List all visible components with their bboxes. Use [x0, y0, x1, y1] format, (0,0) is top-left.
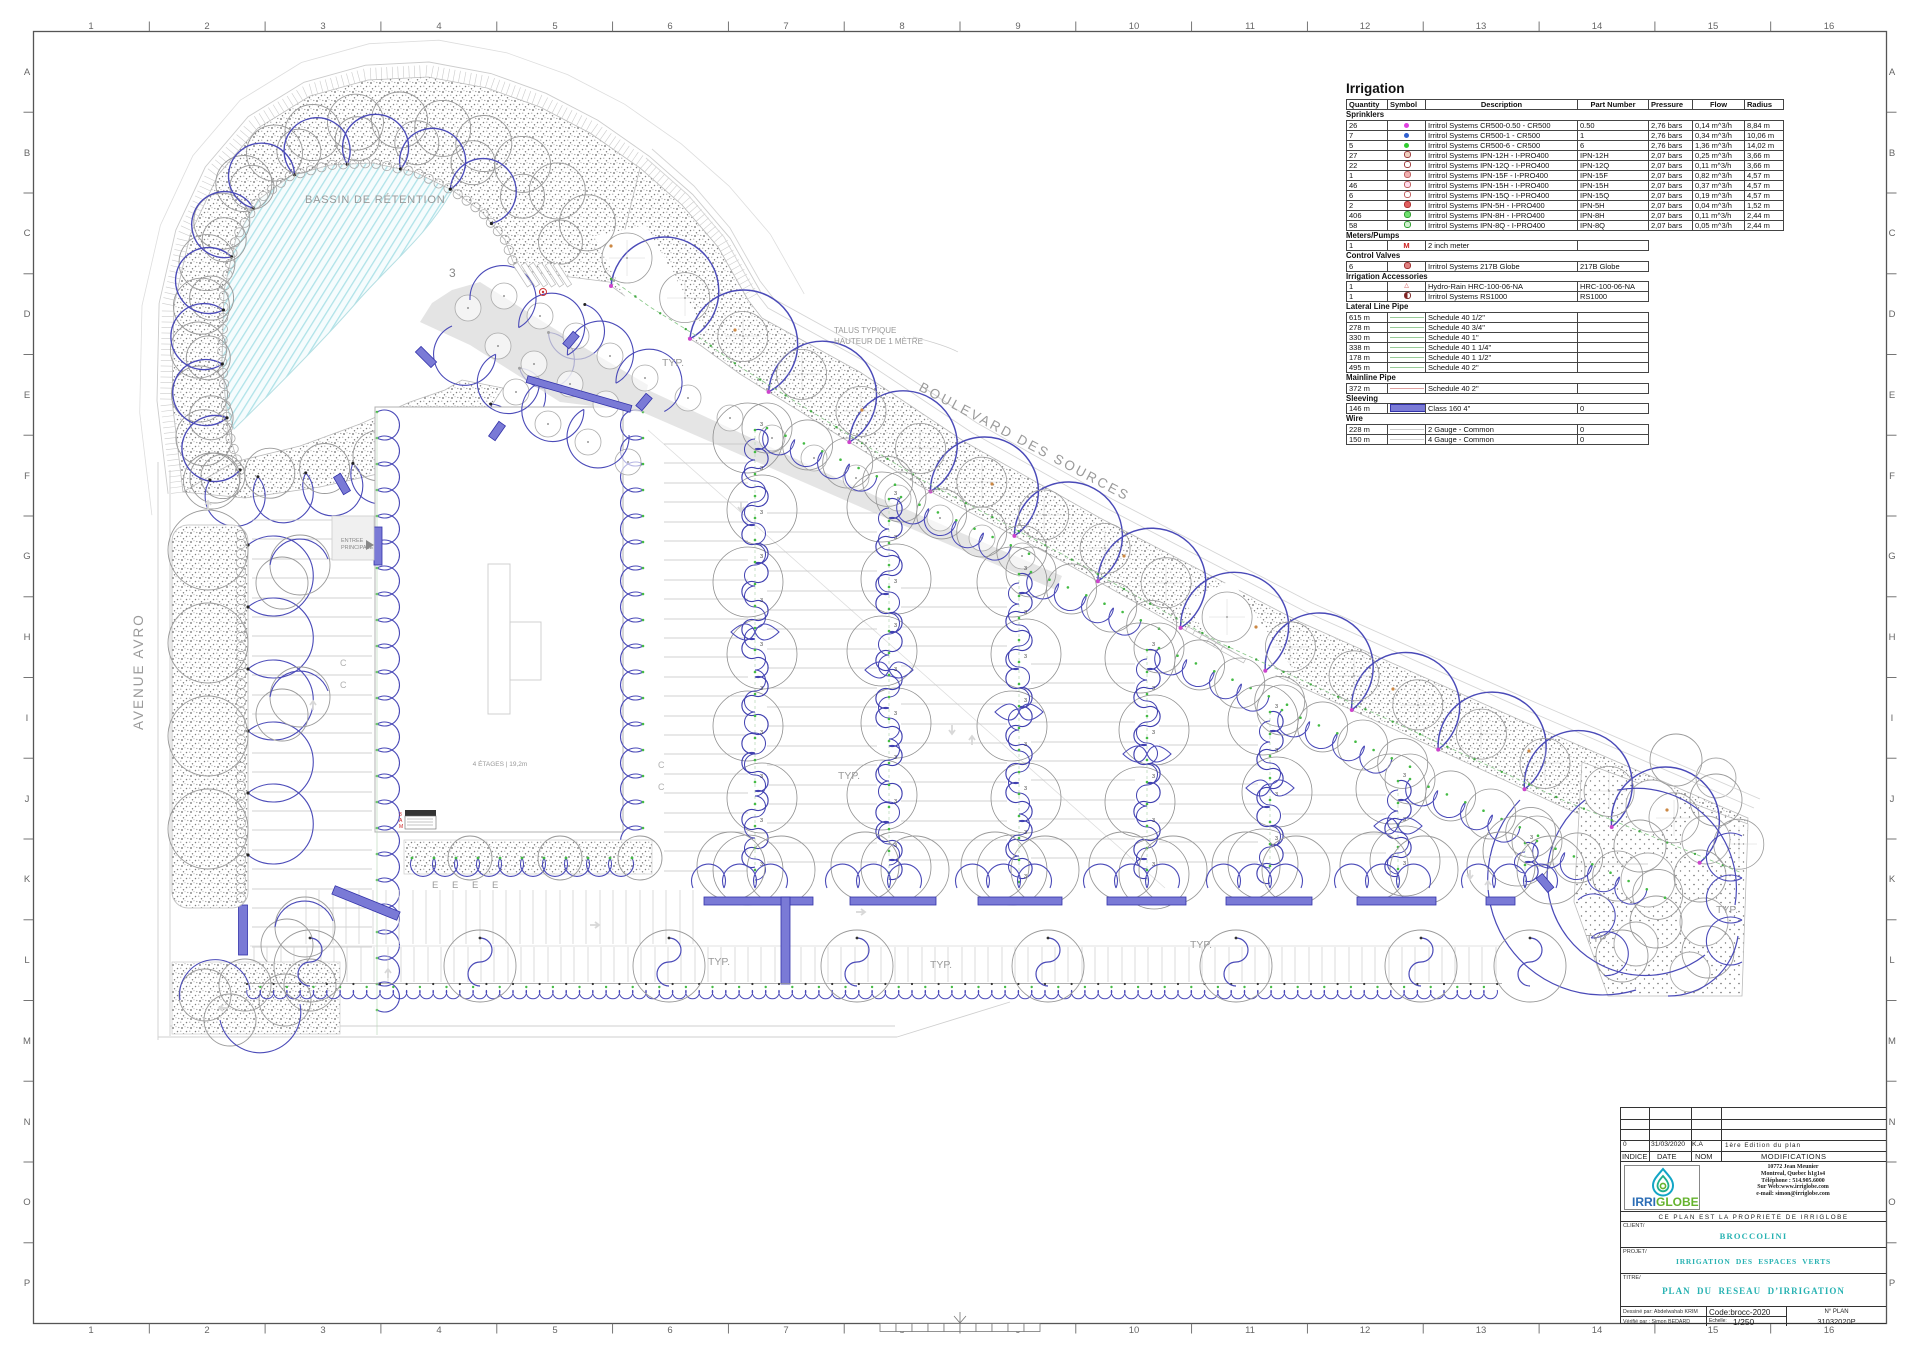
svg-text:8: 8 [899, 21, 904, 32]
svg-text:D: D [24, 309, 31, 320]
svg-text:5: 5 [552, 21, 557, 32]
svg-text:3: 3 [1024, 786, 1027, 792]
svg-text:C: C [1889, 228, 1896, 239]
svg-text:2: 2 [204, 21, 209, 32]
svg-text:2: 2 [204, 1325, 209, 1336]
svg-text:5: 5 [552, 1325, 557, 1336]
svg-text:3: 3 [1152, 642, 1155, 648]
svg-text:7: 7 [783, 21, 788, 32]
svg-text:15: 15 [1708, 21, 1719, 32]
svg-text:TYP.: TYP. [1190, 939, 1212, 951]
svg-text:3: 3 [894, 711, 897, 717]
svg-text:TALUS TYPIQUE: TALUS TYPIQUE [834, 326, 896, 335]
svg-text:IRRIGLOBE: IRRIGLOBE [1632, 1195, 1699, 1209]
svg-text:3: 3 [1530, 835, 1533, 841]
svg-text:BASSIN DE RÉTENTION: BASSIN DE RÉTENTION [305, 193, 446, 206]
svg-text:H: H [1889, 632, 1896, 643]
svg-text:3: 3 [760, 686, 763, 692]
svg-text:3: 3 [894, 623, 897, 629]
svg-text:I: I [1891, 713, 1894, 724]
svg-text:13: 13 [1476, 21, 1487, 32]
svg-text:16: 16 [1824, 21, 1835, 32]
svg-text:3: 3 [1275, 704, 1278, 710]
svg-text:M: M [23, 1036, 31, 1047]
svg-text:F: F [1889, 471, 1895, 482]
svg-text:3: 3 [760, 774, 763, 780]
svg-text:C: C [658, 760, 665, 770]
svg-text:E: E [1889, 390, 1895, 401]
svg-text:A: A [1889, 67, 1896, 78]
svg-text:3: 3 [760, 598, 763, 604]
svg-text:3: 3 [1024, 742, 1027, 748]
svg-text:TYP.: TYP. [930, 959, 952, 971]
svg-text:TYP.: TYP. [662, 357, 684, 369]
svg-text:D: D [1889, 309, 1896, 320]
svg-text:K: K [24, 874, 31, 885]
svg-text:ENTREE: ENTREE [341, 538, 364, 544]
svg-text:3: 3 [894, 491, 897, 497]
svg-text:P: P [24, 1278, 30, 1289]
svg-text:N: N [24, 1117, 31, 1128]
svg-text:1: 1 [88, 21, 93, 32]
svg-text:3: 3 [1152, 774, 1155, 780]
svg-text:TYP.: TYP. [1586, 933, 1608, 945]
svg-text:E: E [24, 390, 30, 401]
svg-text:3: 3 [760, 466, 763, 472]
svg-text:3: 3 [760, 730, 763, 736]
svg-text:3: 3 [1024, 698, 1027, 704]
svg-text:TYP.: TYP. [1716, 904, 1738, 916]
svg-text:3: 3 [894, 579, 897, 585]
svg-text:O: O [1888, 1197, 1895, 1208]
svg-text:12: 12 [1360, 1325, 1371, 1336]
svg-text:3: 3 [1403, 773, 1406, 779]
svg-text:K: K [1889, 874, 1896, 885]
svg-text:H: H [24, 632, 31, 643]
svg-text:15: 15 [1708, 1325, 1719, 1336]
svg-text:10: 10 [1129, 21, 1140, 32]
svg-text:A: A [24, 67, 31, 78]
svg-text:3: 3 [894, 755, 897, 761]
svg-text:14: 14 [1592, 21, 1603, 32]
svg-text:N: N [1889, 1117, 1896, 1128]
svg-text:B: B [1889, 148, 1895, 159]
svg-text:3: 3 [894, 799, 897, 805]
svg-text:3: 3 [760, 554, 763, 560]
svg-text:3: 3 [1152, 686, 1155, 692]
svg-text:F: F [24, 471, 30, 482]
svg-text:3: 3 [760, 510, 763, 516]
svg-text:J: J [25, 794, 30, 805]
svg-text:3: 3 [1024, 566, 1027, 572]
svg-text:3: 3 [1024, 830, 1027, 836]
svg-text:G: G [23, 551, 30, 562]
svg-text:10: 10 [1129, 1325, 1140, 1336]
svg-text:HAUTEUR DE 1 MÈTRE: HAUTEUR DE 1 MÈTRE [834, 337, 923, 346]
svg-text:11: 11 [1245, 1325, 1255, 1336]
svg-text:C: C [340, 658, 347, 668]
svg-text:E: E [432, 880, 438, 891]
svg-text:16: 16 [1824, 1325, 1835, 1336]
svg-text:3: 3 [1024, 610, 1027, 616]
svg-text:G: G [1888, 551, 1895, 562]
svg-text:L: L [1889, 955, 1894, 966]
svg-text:12: 12 [1360, 21, 1371, 32]
svg-text:M: M [399, 824, 403, 830]
svg-text:E: E [492, 880, 498, 891]
svg-text:TYP.: TYP. [708, 956, 730, 968]
svg-text:3: 3 [320, 1325, 325, 1336]
svg-text:1: 1 [88, 1325, 93, 1336]
svg-text:B: B [24, 148, 30, 159]
svg-text:3: 3 [894, 667, 897, 673]
svg-text:6: 6 [667, 1325, 672, 1336]
svg-text:13: 13 [1476, 1325, 1487, 1336]
svg-text:3: 3 [894, 535, 897, 541]
svg-text:3: 3 [1024, 654, 1027, 660]
svg-text:6: 6 [667, 21, 672, 32]
svg-text:C: C [24, 228, 31, 239]
svg-text:I: I [26, 713, 29, 724]
svg-text:C: C [340, 680, 347, 690]
svg-text:C: C [658, 782, 665, 792]
svg-text:3: 3 [1152, 730, 1155, 736]
svg-text:E: E [452, 880, 458, 891]
svg-text:J: J [1890, 794, 1895, 805]
svg-text:7: 7 [783, 1325, 788, 1336]
svg-text:3: 3 [760, 642, 763, 648]
svg-text:3: 3 [449, 266, 456, 280]
svg-text:E: E [472, 880, 478, 891]
svg-text:L: L [24, 955, 29, 966]
svg-text:3: 3 [320, 21, 325, 32]
svg-text:14: 14 [1592, 1325, 1603, 1336]
svg-text:11: 11 [1245, 21, 1255, 32]
svg-text:M: M [1888, 1036, 1896, 1047]
svg-text:3: 3 [760, 422, 763, 428]
svg-text:3: 3 [1275, 748, 1278, 754]
svg-text:9: 9 [1015, 21, 1020, 32]
svg-text:4 ÉTAGES | 19,2m: 4 ÉTAGES | 19,2m [473, 759, 528, 768]
svg-text:TYP.: TYP. [838, 770, 860, 782]
svg-text:3: 3 [1152, 818, 1155, 824]
svg-text:3: 3 [760, 818, 763, 824]
svg-text:AVENUE AVRO: AVENUE AVRO [131, 613, 146, 730]
svg-text:4: 4 [436, 21, 441, 32]
svg-text:O: O [23, 1197, 30, 1208]
svg-text:4: 4 [436, 1325, 441, 1336]
svg-text:P: P [1889, 1278, 1895, 1289]
svg-text:3: 3 [894, 843, 897, 849]
